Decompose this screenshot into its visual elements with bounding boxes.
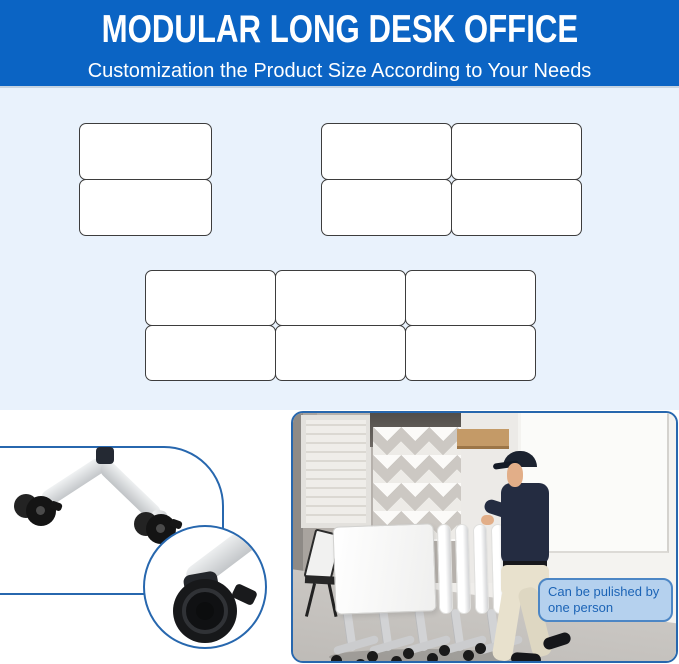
desk-top-two-desk-combo [79,123,212,180]
worker-head [507,463,523,487]
worker-shirt [501,483,549,565]
desk-top-four-desk-combo [451,123,582,180]
desk-top-six-desk-combo [275,270,406,326]
leg-post [96,447,114,464]
page-subtitle: Customization the Product Size According… [0,59,679,83]
desk-top-four-desk-combo [321,123,452,180]
caster-detail-panel [0,410,291,664]
desk-top-four-desk-combo [321,179,452,236]
worker-shoe [511,652,542,663]
header-banner: MODULAR LONG DESK OFFICE Customization t… [0,0,679,88]
desk-top-four-desk-combo [451,179,582,236]
scene-panel: Can be pulished by one person [291,411,678,663]
bottom-section: Can be pulished by one person [0,410,679,664]
product-infographic: MODULAR LONG DESK OFFICE Customization t… [0,0,679,664]
page-title: MODULAR LONG DESK OFFICE [0,10,679,58]
page-title-text: MODULAR LONG DESK OFFICE [101,10,578,50]
desk-top-six-desk-combo [145,270,276,326]
caption-text: Can be pulished by one person [548,584,671,616]
folded-desk-top [332,523,436,614]
desk-top-six-desk-combo [275,325,406,381]
worker [483,449,583,661]
office-window [301,415,371,528]
worker-hand [481,515,494,525]
caster-zoom-callout [143,525,267,649]
desk-layout-diagram [0,88,679,410]
caption-badge: Can be pulished by one person [538,578,673,622]
desk-top-two-desk-combo [79,179,212,236]
wood-shelf [457,429,509,449]
desk-top-six-desk-combo [405,270,536,326]
desk-top-six-desk-combo [405,325,536,381]
desk-top-six-desk-combo [145,325,276,381]
